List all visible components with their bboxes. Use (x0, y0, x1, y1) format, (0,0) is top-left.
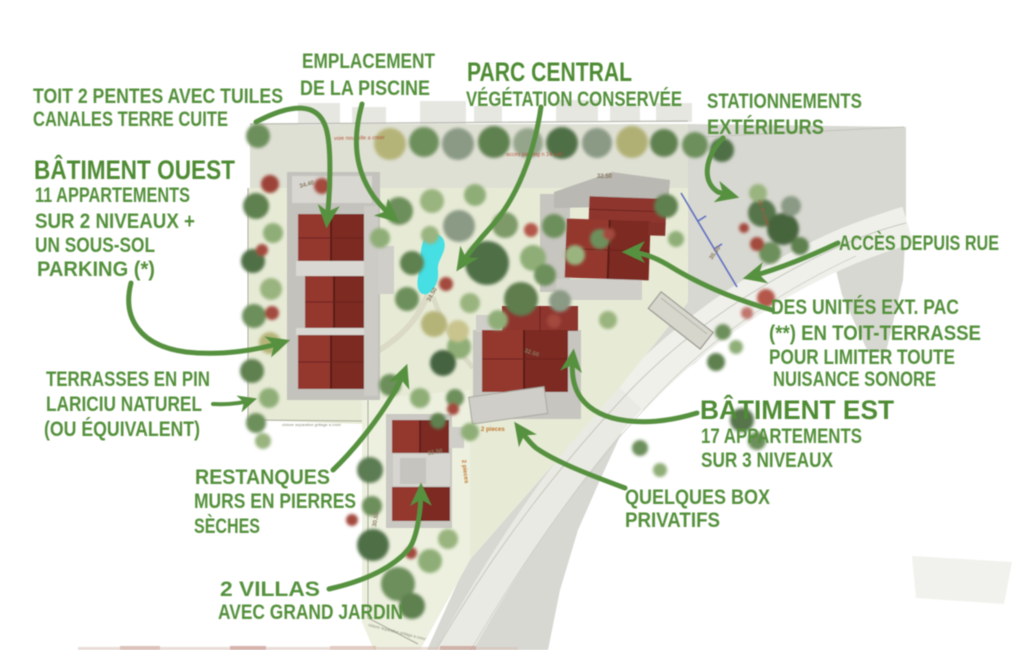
svg-text:POUR LIMITER TOUTE: POUR LIMITER TOUTE (769, 346, 955, 369)
svg-text:PARKING (*): PARKING (*) (37, 258, 155, 281)
svg-text:BÂTIMENT EST: BÂTIMENT EST (700, 394, 894, 425)
svg-text:DES UNITÉS EXT. PAC: DES UNITÉS EXT. PAC (771, 296, 959, 319)
svg-text:EMPLACEMENT: EMPLACEMENT (302, 50, 435, 73)
svg-text:ACCÈS DEPUIS RUE: ACCÈS DEPUIS RUE (839, 232, 999, 255)
svg-text:2 VILLAS: 2 VILLAS (220, 578, 320, 601)
svg-text:SUR 3 NIVEAUX: SUR 3 NIVEAUX (701, 449, 833, 472)
svg-text:(OU ÉQUIVALENT): (OU ÉQUIVALENT) (44, 418, 200, 441)
svg-text:CANALES TERRE CUITE: CANALES TERRE CUITE (33, 108, 228, 131)
svg-text:LARICIU NATUREL: LARICIU NATUREL (46, 393, 202, 416)
svg-text:TOIT 2 PENTES AVEC TUILES: TOIT 2 PENTES AVEC TUILES (33, 85, 283, 108)
svg-text:SUR 2 NIVEAUX +: SUR 2 NIVEAUX + (35, 210, 195, 233)
svg-text:PARC CENTRAL: PARC CENTRAL (467, 57, 632, 87)
svg-text:acces parking n 14 voit: acces parking n 14 voit (506, 152, 563, 158)
svg-text:11 APPARTEMENTS: 11 APPARTEMENTS (35, 184, 190, 207)
svg-text:MURS EN PIERRES: MURS EN PIERRES (194, 490, 356, 513)
svg-text:NUISANCE SONORE: NUISANCE SONORE (773, 368, 936, 391)
svg-text:voie nouvelle a creer: voie nouvelle a creer (334, 135, 385, 142)
svg-text:DE LA PISCINE: DE LA PISCINE (300, 77, 430, 100)
svg-text:cloture separative grillage a: cloture separative grillage a creer (282, 422, 342, 427)
svg-text:TERRASSES EN PIN: TERRASSES EN PIN (46, 368, 210, 391)
svg-text:UN SOUS-SOL: UN SOUS-SOL (35, 234, 155, 257)
svg-text:SÈCHES: SÈCHES (194, 515, 260, 538)
svg-text:QUELQUES BOX: QUELQUES BOX (625, 486, 770, 509)
svg-text:RESTANQUES: RESTANQUES (195, 466, 330, 489)
svg-text:BÂTIMENT OUEST: BÂTIMENT OUEST (34, 154, 235, 185)
svg-text:32.50: 32.50 (597, 174, 613, 180)
svg-text:PRIVATIFS: PRIVATIFS (625, 509, 720, 532)
svg-text:AVEC GRAND JARDIN: AVEC GRAND JARDIN (218, 601, 403, 624)
svg-text:EXTÉRIEURS: EXTÉRIEURS (707, 116, 824, 139)
svg-text:2 pieces: 2 pieces (481, 427, 505, 433)
svg-text:17 APPARTEMENTS: 17 APPARTEMENTS (701, 425, 862, 448)
svg-text:STATIONNEMENTS: STATIONNEMENTS (707, 90, 862, 113)
svg-text:(**) EN TOIT-TERRASSE: (**) EN TOIT-TERRASSE (769, 322, 981, 345)
svg-text:VÉGÉTATION CONSERVÉE: VÉGÉTATION CONSERVÉE (466, 88, 682, 111)
